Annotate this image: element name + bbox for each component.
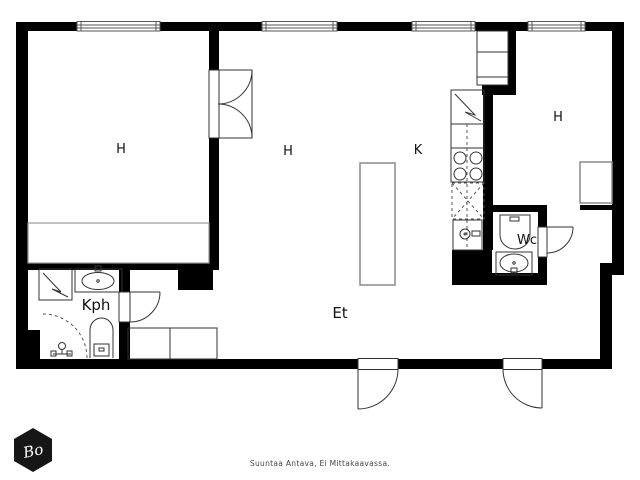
door-wc <box>538 227 573 257</box>
wall-kph-corner <box>28 330 40 359</box>
door-balcony <box>358 359 398 410</box>
room-label-h2: H <box>283 144 293 159</box>
floor-plan: H H K H Wc Kph Et Bo Suuntaa Antava, Ei … <box>0 0 640 480</box>
refrigerator <box>451 90 484 124</box>
wc-basin <box>496 252 532 275</box>
wall-wc-north <box>485 205 547 212</box>
room-label-h1: H <box>116 142 126 157</box>
wall-h1-h2-lower <box>209 138 219 270</box>
wall-right-upper <box>612 22 624 263</box>
wall-top <box>475 22 528 31</box>
door-entrance <box>503 359 542 409</box>
double-door-h1-h2 <box>209 70 252 138</box>
room-label-h3: H <box>553 110 563 125</box>
brand-logo: Bo <box>14 428 52 472</box>
wall-closet-east <box>508 29 516 87</box>
shower-area <box>43 314 87 358</box>
hall-wardrobe <box>128 328 217 359</box>
fixtures <box>28 31 612 359</box>
wall-h1-h2-upper <box>209 29 219 70</box>
wall-kph-east-upper <box>119 270 130 292</box>
window <box>262 22 337 32</box>
room-label-k: K <box>414 143 423 158</box>
window <box>77 22 160 32</box>
door-kph <box>119 292 160 322</box>
h3-wardrobe <box>580 162 612 203</box>
kitchen-island-cabinet <box>360 163 395 285</box>
wall-stub-et <box>178 270 213 290</box>
window <box>412 22 475 32</box>
washing-machine <box>39 269 72 300</box>
wall-h3-south-stub <box>580 205 612 210</box>
wall-top <box>337 22 412 31</box>
wall-right-step <box>600 263 624 275</box>
closet-kitchen <box>477 31 508 85</box>
room-label-wc: Wc <box>517 233 537 248</box>
wall-k-jog <box>482 85 516 95</box>
wall-right-lower <box>600 275 612 369</box>
room-label-kph: Kph <box>82 296 111 314</box>
kph-toilet <box>90 318 113 358</box>
wall-wc-east-upper <box>538 212 547 227</box>
stove <box>451 148 484 182</box>
disclaimer-text: Suuntaa Antava, Ei Mittakaavassa. <box>250 459 390 468</box>
room-label-et: Et <box>332 304 347 322</box>
dishwasher <box>452 183 484 219</box>
bed <box>28 223 209 263</box>
window <box>528 22 585 32</box>
wall-left <box>16 22 28 369</box>
walls <box>16 22 624 369</box>
